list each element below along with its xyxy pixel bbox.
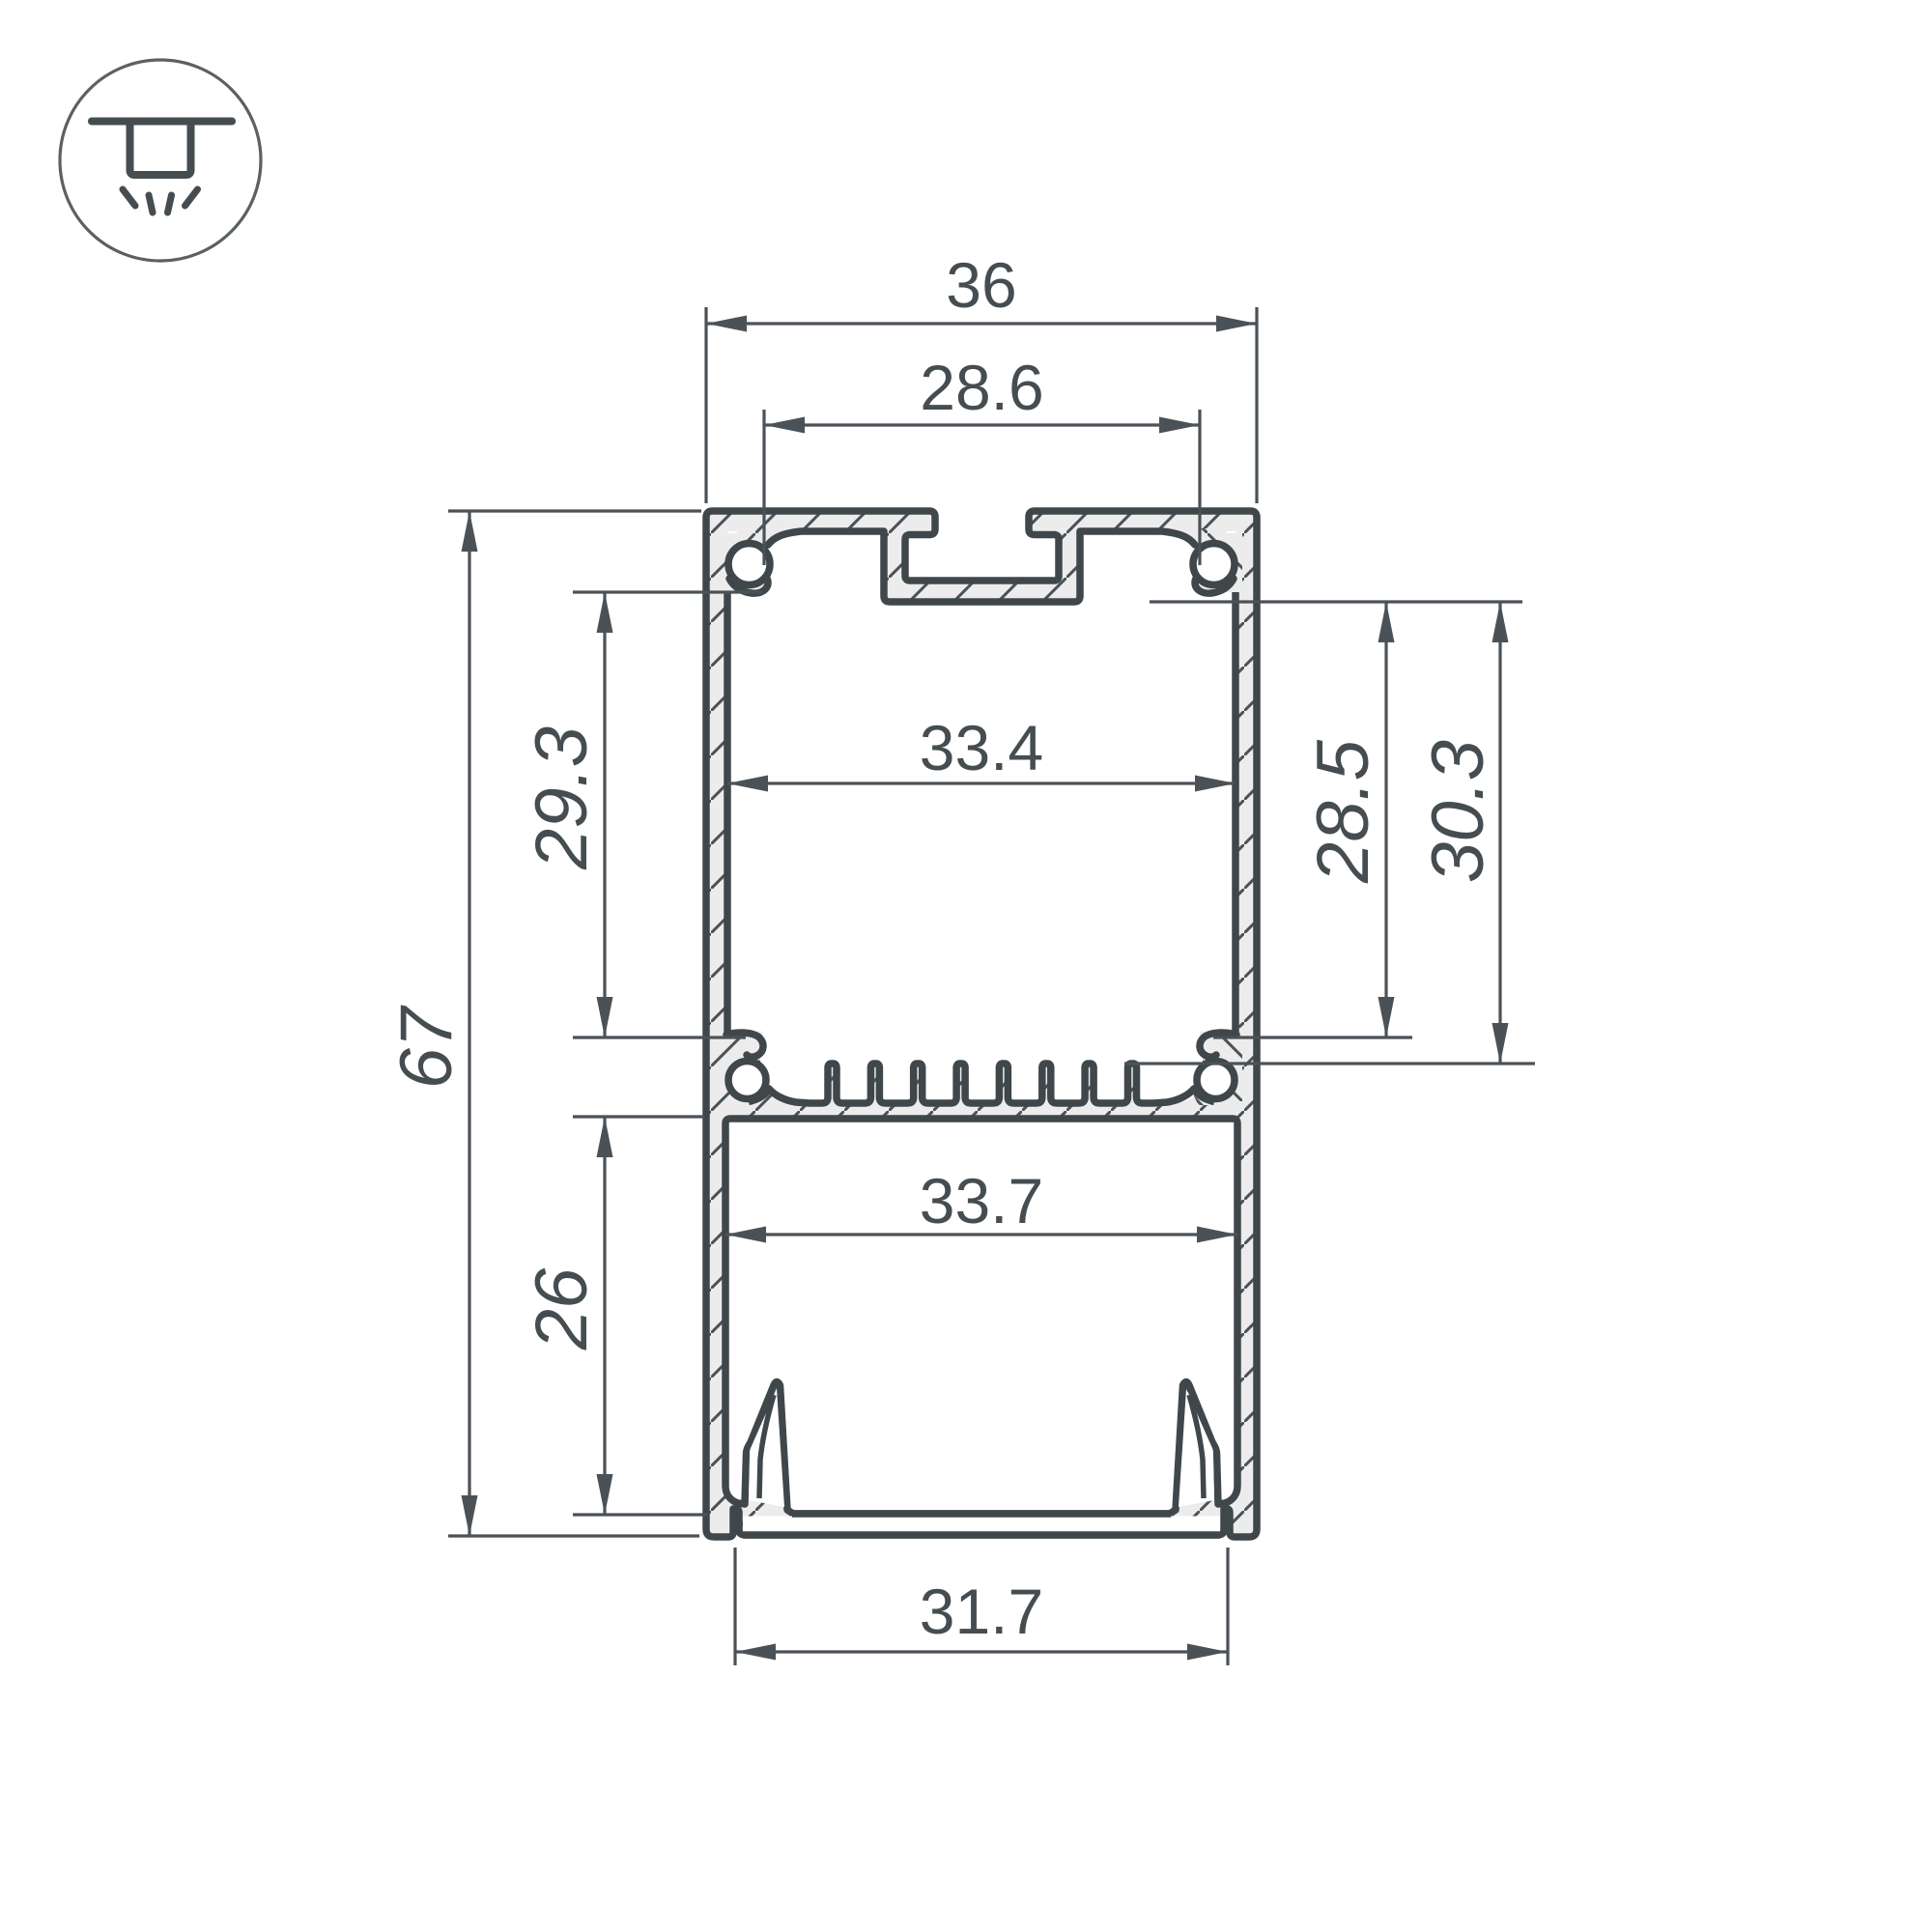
svg-text:33.7: 33.7 [920,1165,1043,1236]
svg-text:30.3: 30.3 [1417,740,1499,883]
svg-text:36: 36 [946,249,1016,321]
svg-text:28.5: 28.5 [1302,739,1384,884]
svg-text:33.4: 33.4 [920,712,1043,783]
svg-text:31.7: 31.7 [920,1576,1043,1647]
svg-text:67: 67 [385,1005,468,1089]
svg-text:26: 26 [521,1267,603,1350]
svg-text:28.6: 28.6 [920,352,1043,423]
svg-text:29.3: 29.3 [521,726,603,870]
